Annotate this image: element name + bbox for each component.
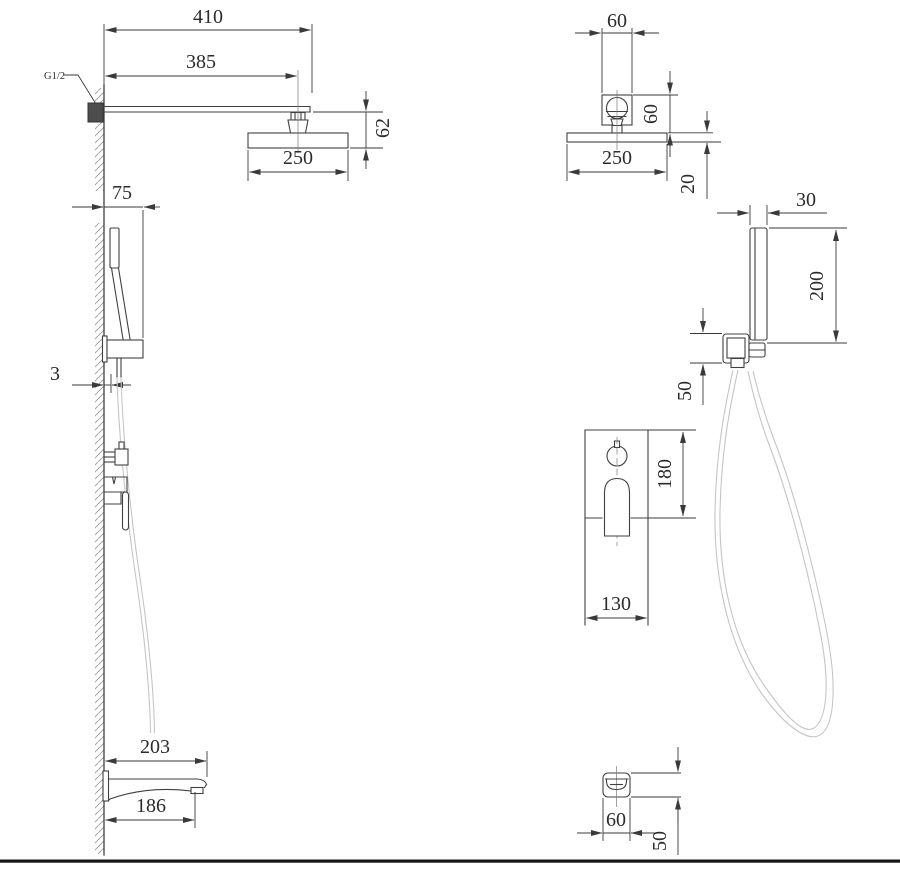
hand-shower-front-view: 30 200 50 bbox=[674, 189, 847, 737]
dim-label-handle-length: 200 bbox=[806, 271, 828, 301]
wall-outlet-stub bbox=[119, 442, 124, 449]
thread-leader-line bbox=[64, 75, 96, 104]
hand-shower-handle-front bbox=[750, 228, 767, 340]
dim-label-spout-height: 50 bbox=[649, 831, 671, 851]
thread-size-label: G1/2 bbox=[44, 71, 65, 82]
dim-label-handle-width: 30 bbox=[796, 189, 816, 211]
wall-outlet-side bbox=[115, 449, 128, 465]
holder-bracket-side bbox=[107, 340, 143, 358]
holder-bracket-inner bbox=[727, 338, 745, 358]
mixer-lever-front bbox=[605, 479, 630, 537]
mixer-lever-side bbox=[123, 492, 129, 530]
spout-flange bbox=[103, 771, 109, 801]
dim-label-wall-offset: 3 bbox=[50, 363, 60, 385]
dim-label-head-thickness: 20 bbox=[677, 174, 699, 194]
spout-side-view: 203 186 bbox=[103, 736, 207, 828]
mixer-handle-notch bbox=[113, 477, 116, 484]
dim-label-spout-overall: 203 bbox=[140, 736, 170, 758]
dim-label-head-width-side: 250 bbox=[283, 147, 313, 169]
dim-holder-depth bbox=[72, 207, 160, 338]
shower-hose-left bbox=[117, 378, 155, 733]
bottom-border-line bbox=[0, 860, 900, 863]
shower-head-front-view: 60 60 20 250 bbox=[567, 10, 721, 199]
dim-label-mixer-plate-height: 180 bbox=[654, 459, 676, 489]
dim-label-spout-outlet: 186 bbox=[136, 795, 166, 817]
dim-label-spout-width: 60 bbox=[606, 809, 626, 831]
hand-shower-head-side bbox=[110, 228, 119, 268]
technical-drawing: 410 385 62 250 G1/2 bbox=[0, 0, 900, 873]
wall-hatching-main bbox=[95, 223, 104, 854]
spout-front-view: 60 50 bbox=[577, 747, 681, 855]
shower-hose-loop bbox=[715, 370, 833, 737]
dim-label-connector-width: 60 bbox=[607, 10, 627, 32]
mixer-front-view: 180 130 bbox=[585, 430, 696, 625]
dim-connector-width bbox=[575, 28, 659, 93]
dim-label-holder-depth: 75 bbox=[112, 182, 132, 204]
dim-label-head-drop: 62 bbox=[372, 118, 394, 138]
wall bbox=[95, 85, 104, 855]
dim-label-connector-height: 60 bbox=[640, 104, 662, 124]
holder-nut bbox=[731, 359, 744, 368]
wall-connector bbox=[88, 103, 103, 122]
dim-label-mixer-plate-width: 130 bbox=[601, 593, 631, 615]
dim-label-arm-overall: 410 bbox=[193, 6, 223, 28]
spout-aerator bbox=[191, 788, 203, 794]
holder-wall-mount bbox=[103, 336, 108, 362]
dim-label-head-width-front: 250 bbox=[602, 147, 632, 169]
dim-label-wall-to-head-center: 385 bbox=[186, 51, 216, 73]
mixer-side-view bbox=[105, 442, 129, 530]
dim-label-holder-height: 50 bbox=[674, 381, 696, 401]
